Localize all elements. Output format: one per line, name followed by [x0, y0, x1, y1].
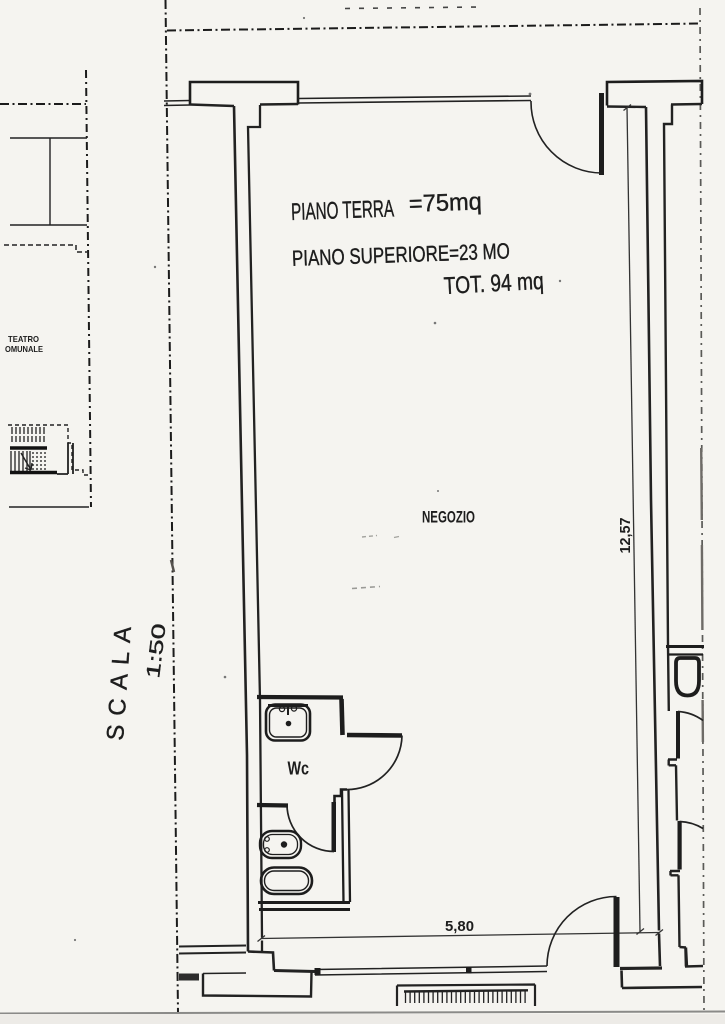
svg-text:12,57: 12,57	[618, 518, 634, 554]
svg-text:Wc: Wc	[288, 759, 310, 779]
svg-text:5,80: 5,80	[445, 918, 474, 935]
svg-text:TEATRO: TEATRO	[8, 334, 39, 344]
svg-text:PIANO TERRA: PIANO TERRA	[291, 195, 395, 226]
svg-text:TOT. 94 mq: TOT. 94 mq	[443, 268, 544, 300]
svg-text:OMUNALE: OMUNALE	[5, 344, 43, 354]
svg-text:=75mq: =75mq	[408, 188, 482, 218]
svg-text:NEGOZIO: NEGOZIO	[422, 509, 475, 527]
